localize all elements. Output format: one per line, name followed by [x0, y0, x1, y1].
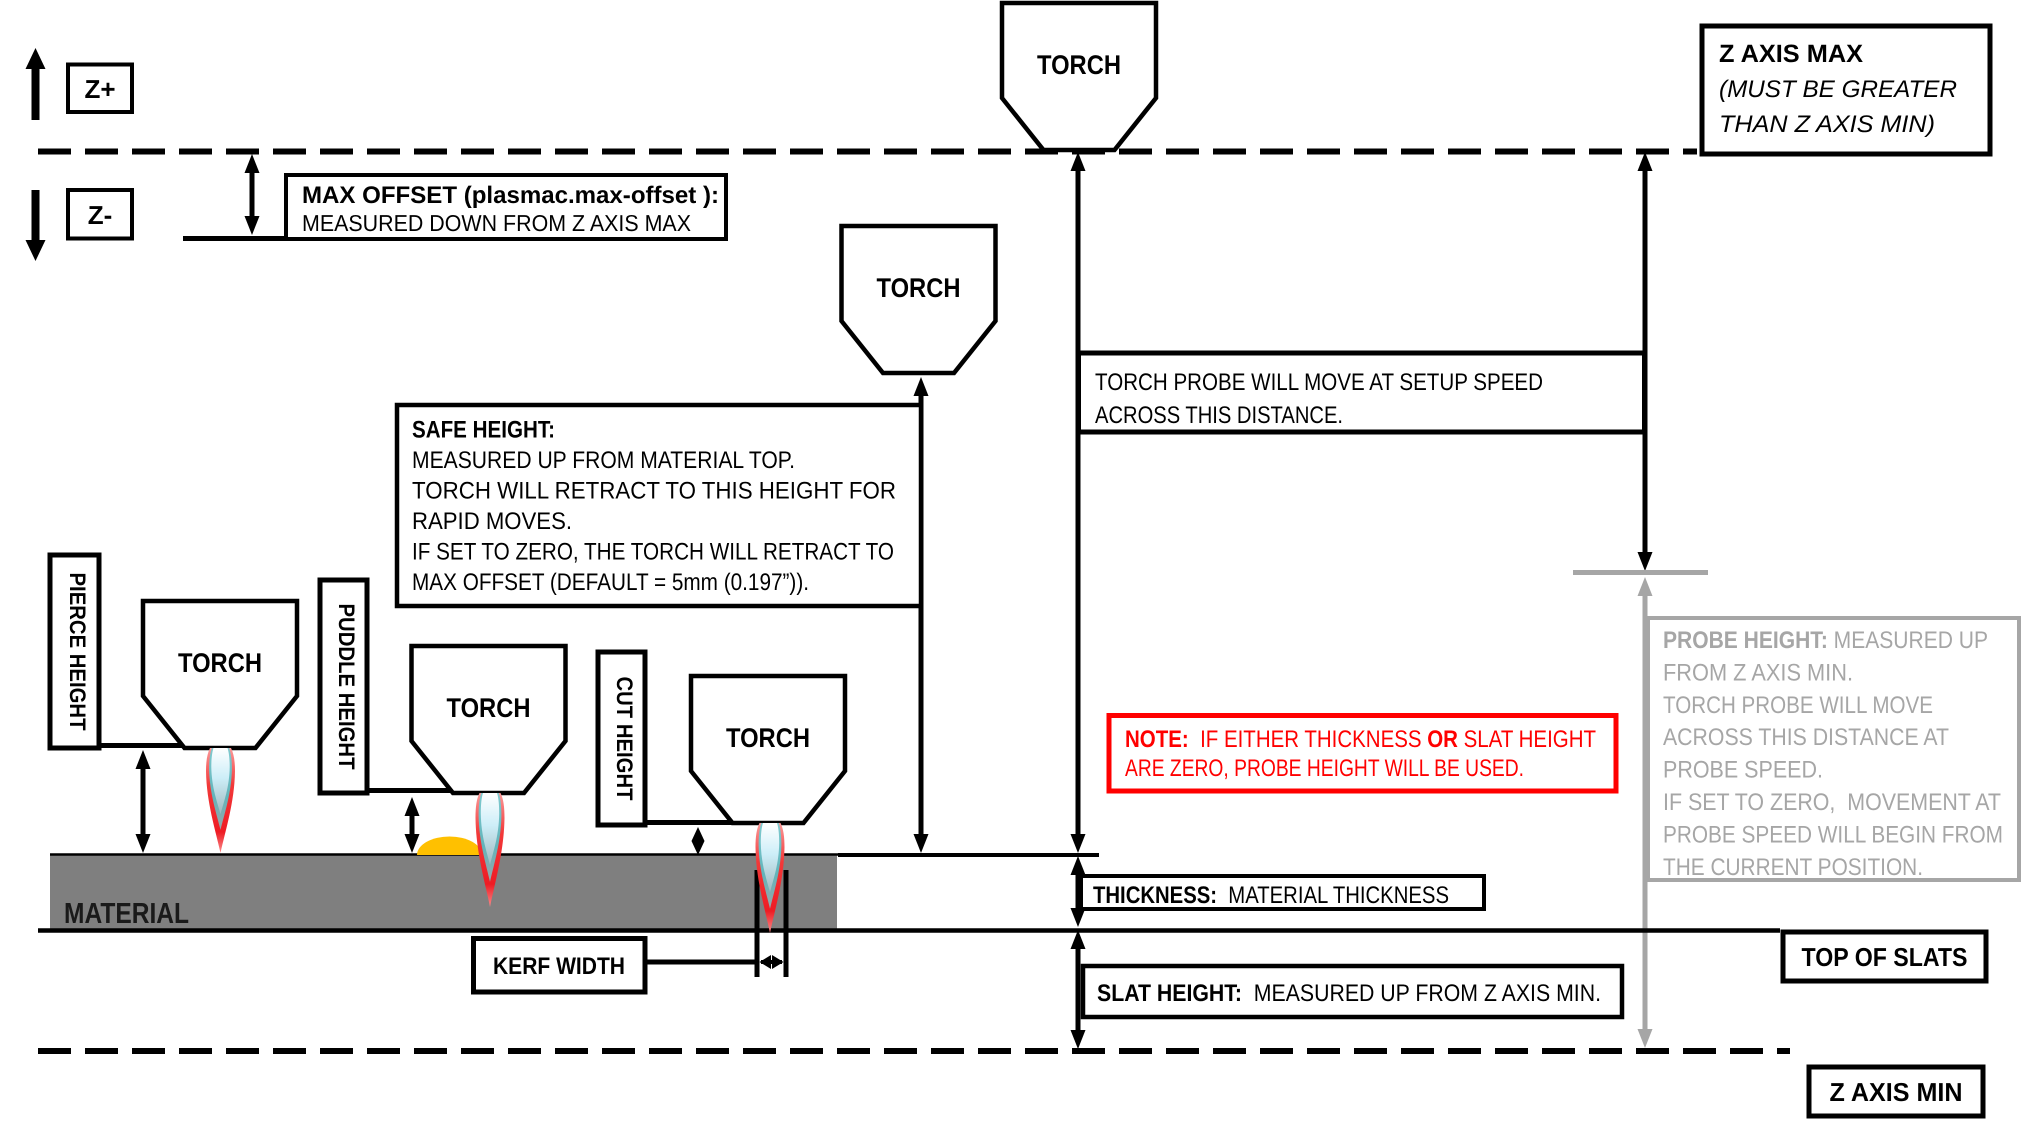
svg-text:Z AXIS MAX: Z AXIS MAX — [1719, 40, 1863, 68]
svg-text:MAX OFFSET (DEFAULT = 5mm (0.1: MAX OFFSET (DEFAULT = 5mm (0.197”)). — [412, 569, 809, 596]
svg-text:FROM Z AXIS MIN.: FROM Z AXIS MIN. — [1663, 659, 1853, 686]
svg-text:MEASURED UP FROM MATERIAL TOP.: MEASURED UP FROM MATERIAL TOP. — [412, 447, 795, 474]
svg-text:(MUST BE GREATER: (MUST BE GREATER — [1719, 76, 1957, 103]
svg-text:TORCH: TORCH — [1037, 50, 1121, 80]
svg-text:PROBE SPEED WILL BEGIN FROM: PROBE SPEED WILL BEGIN FROM — [1663, 821, 2003, 848]
svg-text:MATERIAL: MATERIAL — [64, 898, 189, 930]
svg-text:THICKNESS: MATERIAL THICKNESS: THICKNESS: MATERIAL THICKNESS — [1093, 882, 1449, 909]
svg-text:TORCH: TORCH — [447, 693, 531, 723]
svg-text:THAN Z AXIS MIN): THAN Z AXIS MIN) — [1719, 111, 1935, 138]
svg-text:MAX OFFSET (plasmac.max-offset: MAX OFFSET (plasmac.max-offset ): — [302, 182, 719, 209]
svg-text:PIERCE HEIGHT: PIERCE HEIGHT — [65, 573, 90, 731]
svg-text:KERF WIDTH: KERF WIDTH — [493, 953, 625, 980]
svg-text:PROBE HEIGHT: MEASURED UP: PROBE HEIGHT: MEASURED UP — [1663, 627, 1988, 654]
svg-text:TOP OF SLATS: TOP OF SLATS — [1802, 942, 1968, 972]
svg-text:PROBE SPEED.: PROBE SPEED. — [1663, 757, 1823, 784]
svg-text:TORCH PROBE WILL MOVE AT SETUP: TORCH PROBE WILL MOVE AT SETUP SPEED — [1095, 369, 1543, 396]
svg-text:THE CURRENT POSITION.: THE CURRENT POSITION. — [1663, 854, 1923, 881]
svg-text:PUDDLE HEIGHT: PUDDLE HEIGHT — [334, 604, 359, 770]
svg-text:Z+: Z+ — [84, 74, 115, 104]
svg-text:TORCH: TORCH — [726, 723, 810, 753]
svg-text:SLAT HEIGHT: MEASURED UP FROM: SLAT HEIGHT: MEASURED UP FROM Z AXIS MIN… — [1097, 980, 1601, 1007]
svg-text:IF SET TO ZERO, THE TORCH WILL: IF SET TO ZERO, THE TORCH WILL RETRACT T… — [412, 539, 894, 566]
svg-text:ACROSS THIS DISTANCE.: ACROSS THIS DISTANCE. — [1095, 402, 1343, 429]
svg-text:IF SET TO ZERO, MOVEMENT AT: IF SET TO ZERO, MOVEMENT AT — [1663, 789, 2001, 816]
svg-text:ARE ZERO, PROBE HEIGHT WILL BE: ARE ZERO, PROBE HEIGHT WILL BE USED. — [1125, 755, 1524, 782]
svg-text:SAFE HEIGHT:: SAFE HEIGHT: — [412, 417, 555, 444]
svg-text:TORCH WILL RETRACT TO THIS HEI: TORCH WILL RETRACT TO THIS HEIGHT FOR — [412, 478, 896, 505]
svg-text:TORCH: TORCH — [178, 648, 262, 678]
svg-text:Z AXIS MIN: Z AXIS MIN — [1830, 1077, 1963, 1107]
svg-text:Z-: Z- — [88, 200, 113, 230]
svg-text:TORCH PROBE WILL MOVE: TORCH PROBE WILL MOVE — [1663, 692, 1933, 719]
svg-text:ACROSS THIS DISTANCE AT: ACROSS THIS DISTANCE AT — [1663, 724, 1949, 751]
svg-text:MEASURED DOWN FROM Z AXIS MAX: MEASURED DOWN FROM Z AXIS MAX — [302, 210, 691, 236]
svg-text:TORCH: TORCH — [877, 273, 961, 303]
svg-text:CUT HEIGHT: CUT HEIGHT — [612, 677, 637, 801]
svg-text:NOTE: IF EITHER THICKNESS OR: NOTE: IF EITHER THICKNESS OR SLAT HEIGHT — [1125, 726, 1596, 753]
svg-text:RAPID MOVES.: RAPID MOVES. — [412, 508, 572, 535]
